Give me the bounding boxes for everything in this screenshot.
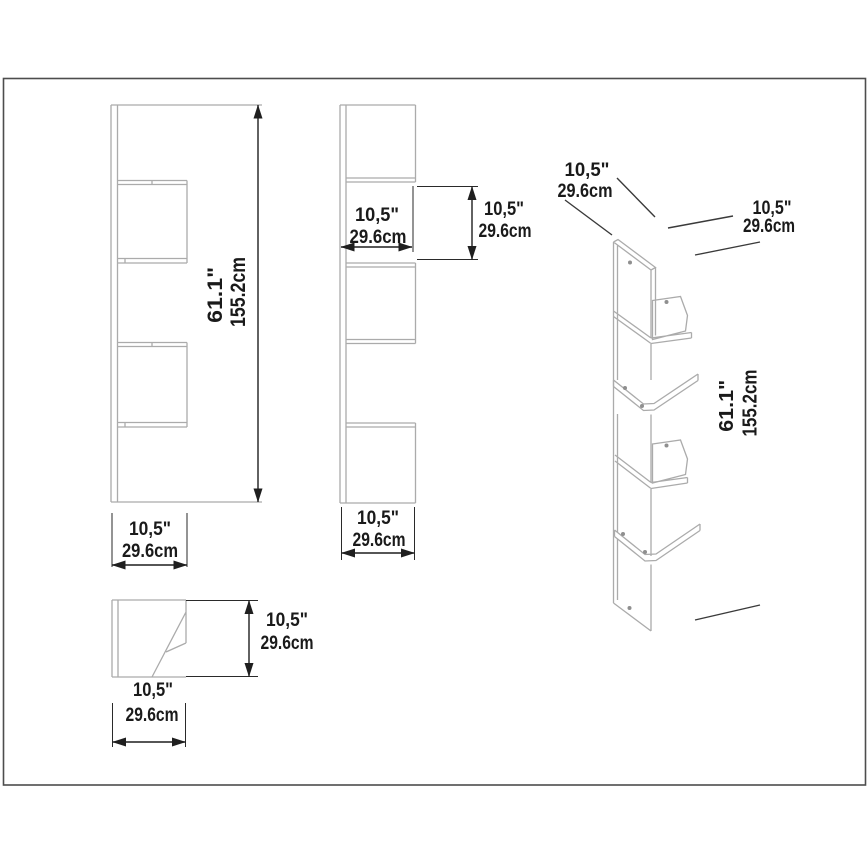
- side-bottom-width-inches: 10,5": [357, 507, 399, 529]
- top-view: 10,5" 29.6cm 10,5" 29.6cm: [112, 600, 314, 747]
- top-depth-extension-lines: [186, 601, 258, 677]
- iso-upper-box-lines: [614, 297, 692, 344]
- top-width-cm: 29.6cm: [126, 704, 179, 726]
- front-width-inches: 10,5": [129, 518, 171, 540]
- screw-hole: [621, 532, 625, 536]
- top-view-panel-lines: [112, 600, 186, 677]
- side-shelf-height-cm: 29.6cm: [479, 220, 532, 242]
- isometric-view: 10,5" 29.6cm 10,5" 29.6cm 61.1" 155.2cm: [558, 159, 796, 631]
- iso-height-cm: 155.2cm: [740, 370, 762, 437]
- top-width-inches: 10,5": [133, 679, 173, 701]
- front-height-inches: 61.1": [204, 267, 227, 323]
- screw-hole: [628, 261, 632, 265]
- side-view: 10,5" 29.6cm 10,5" 29.6cm 10,5" 29.6cm: [340, 105, 532, 560]
- front-width-cm: 29.6cm: [122, 540, 178, 562]
- screw-hole: [623, 386, 627, 390]
- iso-left-depth-cm: 29.6cm: [558, 180, 613, 202]
- iso-height-label: 61.1" 155.2cm: [716, 370, 762, 437]
- shelf-dimension-diagram: 61.1" 155.2cm 10,5" 29.6cm 10,5" 29.6cm …: [0, 0, 868, 868]
- front-height-cm: 155.2cm: [227, 257, 250, 327]
- iso-upper-shelf-lines: [614, 374, 699, 411]
- screw-hole: [665, 300, 669, 304]
- iso-left-depth-inches: 10,5": [565, 159, 610, 181]
- top-depth-inches: 10,5": [266, 609, 308, 631]
- screw-hole: [665, 444, 669, 448]
- iso-right-depth-cm: 29.6cm: [743, 215, 795, 237]
- front-view: 61.1" 155.2cm 10,5" 29.6cm: [111, 105, 262, 567]
- side-view-panel-lines: [340, 105, 416, 503]
- side-bottom-width-cm: 29.6cm: [353, 529, 406, 551]
- iso-height-leader-line: [695, 605, 760, 620]
- screw-hole: [628, 606, 632, 610]
- iso-lower-shelf-lines: [615, 524, 701, 561]
- iso-height-inches: 61.1": [716, 380, 738, 432]
- iso-back-panel-lines: [614, 240, 656, 632]
- screw-hole: [640, 404, 644, 408]
- screw-hole: [643, 550, 647, 554]
- side-shelf-height-extension-lines: [417, 187, 478, 260]
- side-shelf-width-cm: 29.6cm: [350, 226, 407, 248]
- front-height-label: 61.1" 155.2cm: [204, 257, 250, 327]
- technical-drawing-canvas: 61.1" 155.2cm 10,5" 29.6cm 10,5" 29.6cm …: [0, 0, 868, 868]
- side-shelf-height-inches: 10,5": [484, 198, 524, 220]
- top-depth-cm: 29.6cm: [261, 632, 314, 654]
- side-shelf-width-inches: 10,5": [355, 204, 399, 226]
